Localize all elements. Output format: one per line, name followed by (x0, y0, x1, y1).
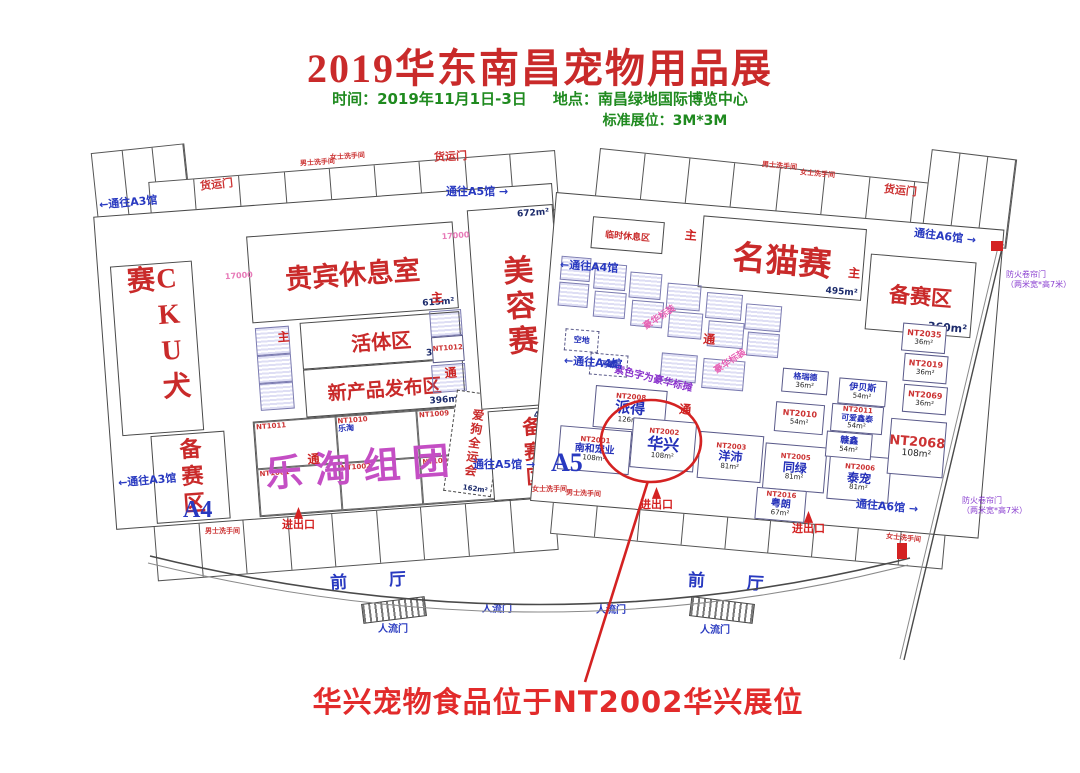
small-booth (259, 382, 295, 411)
zone-live-label: 活体区 (350, 324, 412, 357)
hall-label-a4: A4 (183, 497, 212, 524)
booth-area: 54m² (790, 418, 809, 427)
booth-nt2068: NT2068 108m² (887, 418, 947, 478)
booth-area: 36m² (916, 368, 935, 377)
fire-shutter-line1: 防火卷帘门 (1006, 270, 1046, 279)
zone-cku-dog-show: CKU犬赛 (110, 261, 204, 437)
restroom-label-male: 男士洗手间 (566, 490, 582, 499)
nav-to-a5-bottom: 通往A5馆 → (473, 456, 535, 472)
zone-cat-show-label: 名猫赛 (731, 230, 834, 286)
annotation-text: 华兴宠物食品位于NT2002华兴展位 (18, 679, 1080, 721)
zone-prep-right-label: 备赛区 (888, 278, 953, 313)
aisle-mark: 通 (679, 400, 692, 418)
people-door-3: 人流门 (596, 601, 626, 616)
booth-area: 54m² (847, 422, 866, 431)
booth-area: 81m² (720, 463, 739, 472)
booth-nt2002-huaxing: NT2002 华兴 108m² (629, 417, 697, 472)
zone-cat-show: 名猫赛 495m² (698, 215, 867, 300)
entrance-exit-left: ▲ 进出口 (282, 506, 315, 530)
small-booth (705, 292, 743, 321)
booth-area: 36m² (914, 338, 933, 347)
up-arrow-icon: ▲ (640, 484, 673, 500)
zone-cat-show-area: 495m² (825, 286, 858, 299)
booth-area: 36m² (795, 381, 814, 390)
zone-cku-label: CKU犬赛 (123, 263, 191, 435)
aisle-mark: 通 (703, 330, 716, 348)
booth-ganxin: 赣鑫 54m² (825, 431, 873, 461)
booth-area: 108m² (901, 449, 931, 461)
aisle-mark: 通 (444, 364, 457, 382)
restroom-label-female: 女士洗手间 (800, 169, 817, 178)
restroom-label-male: 男士洗手间 (762, 161, 779, 170)
up-arrow-icon: ▲ (792, 508, 825, 524)
zone-beauty-label: 美容赛 (498, 253, 536, 360)
booth-kongdi: 空地 (564, 328, 600, 353)
fire-shutter-note-bottom: 防火卷帘门 （两米宽*高7米） (962, 496, 1027, 517)
people-door-2: 人流门 (482, 600, 512, 615)
booth-name: 空地 (573, 336, 590, 346)
booth-area: 108m² (582, 454, 606, 463)
entrance-exit-center: ▲ 进出口 (640, 486, 673, 510)
booth-area: 36m² (915, 399, 934, 408)
zone-beauty-area: 672m² (517, 207, 550, 219)
cargo-door-left: 货运门 (199, 174, 233, 193)
fire-shutter-note-top: 防火卷帘门 （两米宽*高7米） (1006, 270, 1071, 291)
small-booth (744, 303, 782, 332)
fire-shutter-line2: （两米宽*高7米） (962, 506, 1027, 515)
booth-id: NT1012 (433, 344, 464, 354)
small-booth (257, 354, 293, 384)
small-booth (628, 272, 662, 301)
restroom-label-male: 男士洗手间 (205, 528, 221, 536)
restroom-label-female: 女士洗手间 (330, 153, 346, 162)
people-door-hatch (689, 596, 755, 624)
restroom-label-female: 女士洗手间 (886, 533, 903, 542)
booth-nt2069: NT2069 36m² (902, 384, 948, 416)
hall-label-a5: A5 (551, 448, 583, 478)
fire-shutter-line1: 防火卷帘门 (962, 496, 1002, 505)
dim-label: 17000 (441, 230, 469, 241)
zone-new-product-label: 新产品发布区 (327, 370, 443, 405)
zone-vip-label: 贵宾休息室 (284, 248, 421, 297)
up-arrow-icon: ▲ (282, 504, 315, 520)
aisle-mark: 通 (307, 450, 320, 468)
main-aisle-mark: 主 (848, 264, 861, 282)
lobby-label-right: 前 厅 (687, 566, 782, 596)
zone-temp-rest-label: 临时休息区 (605, 227, 651, 244)
entrance-exit-right: ▲ 进出口 (792, 510, 825, 534)
main-aisle-mark: 主 (430, 288, 443, 306)
booth-area: 81m² (849, 484, 868, 493)
booth-nt1012: NT1012 (431, 335, 465, 363)
main-aisle-mark: 主 (684, 226, 697, 244)
cargo-door-right: 货运门 (883, 180, 917, 199)
booth-geruide: 格瑞德 36m² (781, 368, 829, 396)
booth-nt2019: NT2019 36m² (902, 353, 948, 385)
restroom-label-male: 男士洗手间 (300, 159, 316, 168)
floor-map: CKU犬赛 备赛区 贵宾休息室 615m² 活体区 396m² 新产品发布区 3… (0, 0, 1080, 773)
booth-nt2003-yangpei: NT2003 洋沛 81m² (697, 431, 765, 483)
lobby-label-left: 前 厅 (329, 564, 424, 594)
small-booth (593, 291, 627, 320)
booth-nt2011-keaixintai: NT2011 可爱鑫泰 54m² (830, 403, 884, 435)
people-door-4: 人流门 (700, 621, 730, 636)
booth-area: 54m² (852, 393, 871, 402)
small-booth (429, 309, 463, 337)
booth-nt2005-tonglv: NT2005 同绿 81m² (762, 442, 828, 493)
booth-area: 81m² (784, 473, 803, 482)
fire-shutter-line2: （两米宽*高7米） (1006, 280, 1071, 289)
booth-nt2010: NT2010 54m² (774, 401, 825, 435)
zone-dog-games-area: 162m² (462, 483, 488, 494)
booth-yibeisi: 伊贝斯 54m² (837, 377, 887, 407)
restroom-label-female: 女士洗手间 (532, 486, 548, 494)
small-booth (746, 332, 780, 359)
booth-area: 67m² (770, 509, 789, 518)
main-aisle-mark: 主 (277, 328, 290, 346)
small-booth (558, 282, 590, 308)
zone-temp-rest: 临时休息区 (590, 216, 664, 254)
booth-nt2035: NT2035 36m² (901, 323, 947, 355)
cargo-door-center: 货运门 (434, 147, 468, 165)
people-door-1: 人流门 (378, 620, 408, 635)
booth-area: 54m² (839, 446, 858, 455)
zone-vip-lounge: 贵宾休息室 615m² (246, 221, 459, 323)
booth-id: NT1011 (256, 419, 334, 432)
nav-to-a5-top: 通往A5馆 → (446, 183, 508, 199)
booth-area: 108m² (650, 452, 674, 461)
